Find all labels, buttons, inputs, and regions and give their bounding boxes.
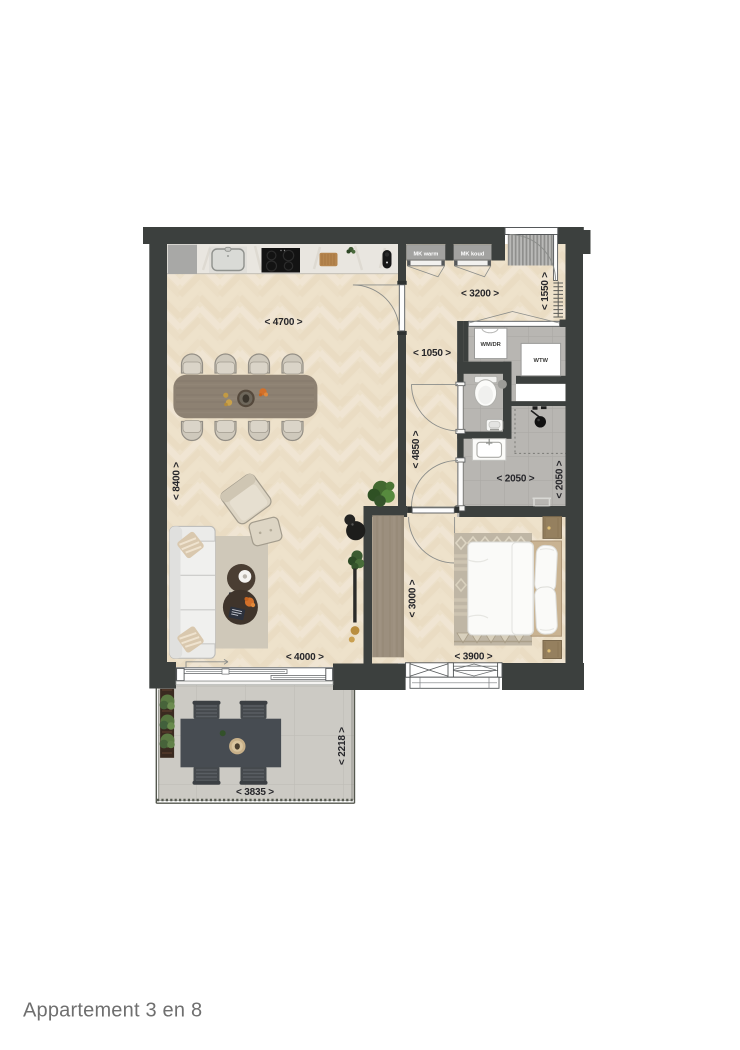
svg-text:< 3000 >: < 3000 > bbox=[408, 579, 419, 617]
svg-text:< 8400 >: < 8400 > bbox=[171, 462, 182, 500]
svg-text:< 3900 >: < 3900 > bbox=[455, 652, 493, 663]
svg-text:< 1050 >: < 1050 > bbox=[413, 348, 451, 359]
svg-text:< 3835 >: < 3835 > bbox=[236, 787, 274, 798]
svg-text:MK koud: MK koud bbox=[461, 251, 485, 257]
svg-text:< 4850 >: < 4850 > bbox=[411, 430, 422, 468]
svg-text:< 3200 >: < 3200 > bbox=[461, 289, 499, 300]
svg-text:< 4000 >: < 4000 > bbox=[286, 652, 324, 663]
svg-text:< 4700 >: < 4700 > bbox=[265, 317, 303, 328]
svg-text:< 2050 >: < 2050 > bbox=[497, 474, 535, 485]
svg-text:MK warm: MK warm bbox=[413, 251, 438, 257]
svg-text:< 2218 >: < 2218 > bbox=[337, 727, 348, 765]
svg-text:WTW: WTW bbox=[534, 358, 549, 364]
svg-text:< 1550 >: < 1550 > bbox=[540, 272, 551, 310]
svg-text:Appartement 3 en 8: Appartement 3 en 8 bbox=[23, 1000, 202, 1022]
svg-text:< 2050 >: < 2050 > bbox=[554, 460, 565, 498]
svg-text:WM/DR: WM/DR bbox=[481, 342, 502, 348]
